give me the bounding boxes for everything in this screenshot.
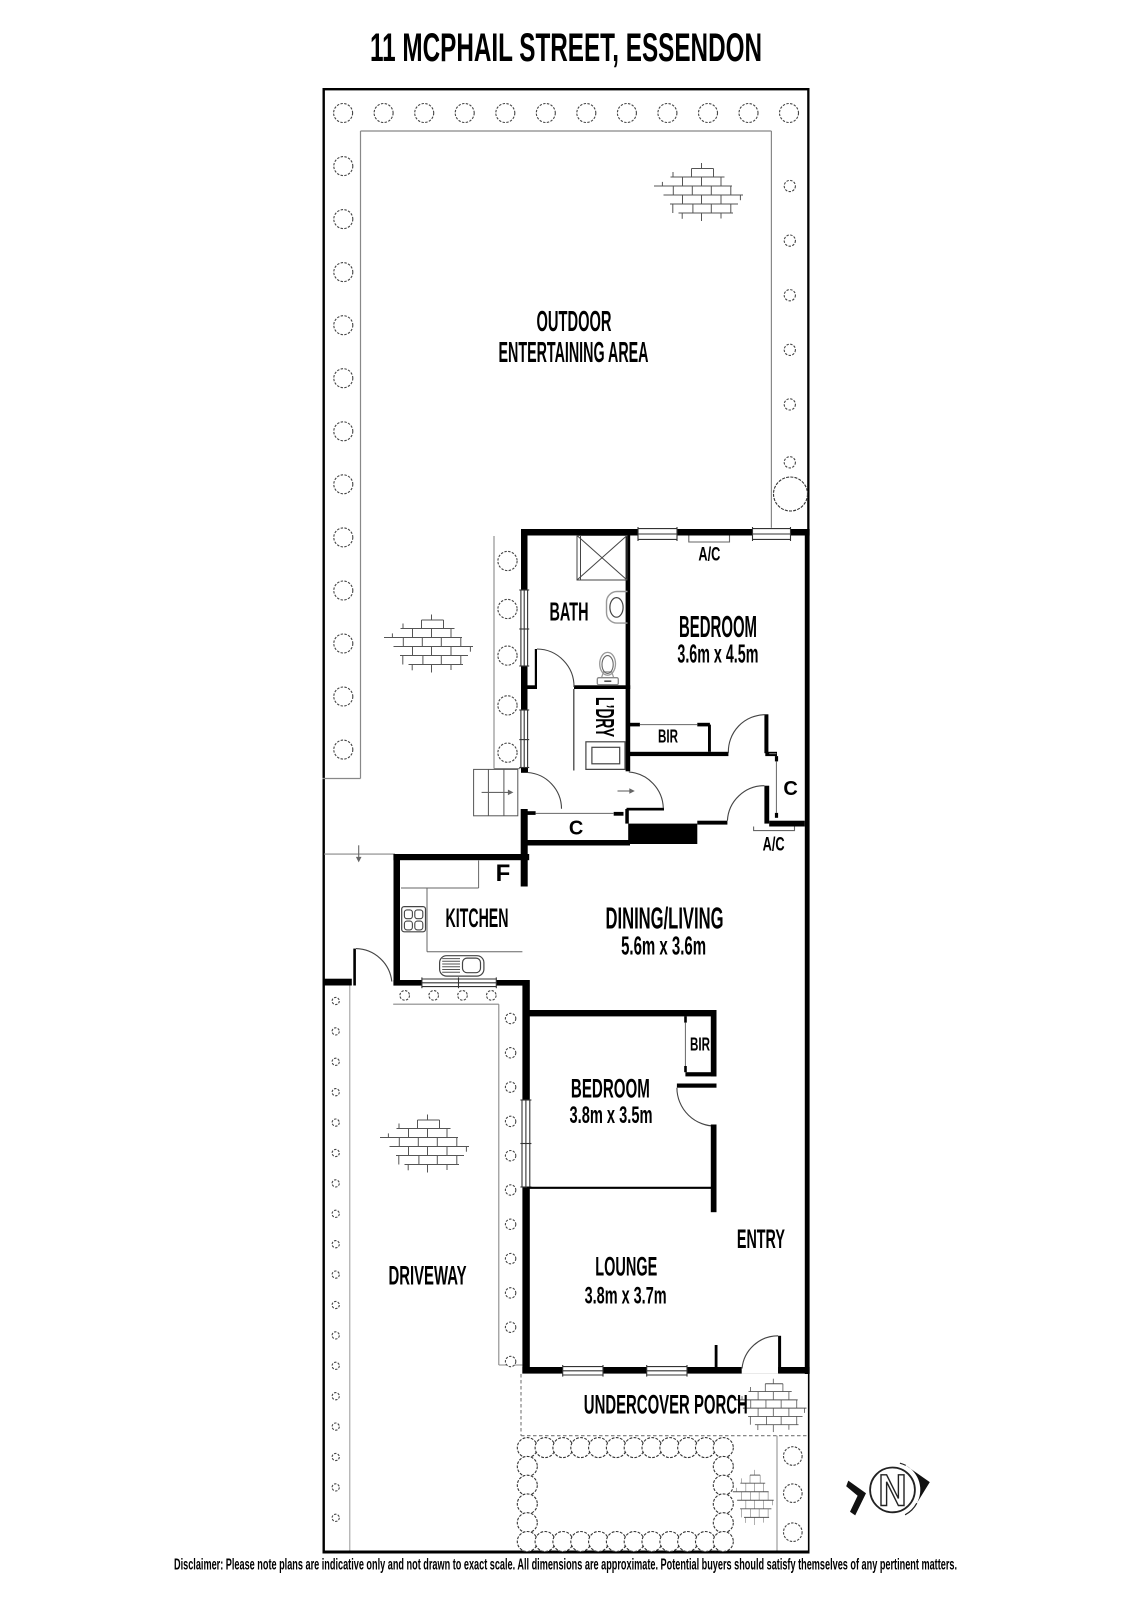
svg-text:BIR: BIR	[658, 727, 678, 747]
svg-text:ENTERTAINING AREA: ENTERTAINING AREA	[499, 337, 649, 369]
svg-text:ENTRY: ENTRY	[737, 1224, 785, 1254]
svg-text:F: F	[496, 860, 511, 887]
svg-text:UNDERCOVER PORCH: UNDERCOVER PORCH	[584, 1390, 748, 1420]
svg-text:A/C: A/C	[698, 545, 720, 566]
svg-text:BATH: BATH	[550, 597, 589, 627]
svg-text:Disclaimer: Please note plans: Disclaimer: Please note plans are indica…	[174, 1557, 957, 1574]
svg-text:BIR: BIR	[690, 1035, 710, 1055]
svg-text:3.6m x 4.5m: 3.6m x 4.5m	[677, 639, 758, 669]
svg-text:OUTDOOR: OUTDOOR	[537, 306, 612, 338]
svg-text:3.8m x 3.7m: 3.8m x 3.7m	[585, 1283, 667, 1310]
svg-text:A/C: A/C	[763, 835, 785, 856]
svg-text:C: C	[783, 778, 797, 800]
svg-text:5.6m x 3.6m: 5.6m x 3.6m	[621, 931, 706, 961]
svg-text:LOUNGE: LOUNGE	[595, 1252, 657, 1282]
svg-text:C: C	[569, 818, 583, 840]
svg-text:KITCHEN: KITCHEN	[446, 903, 509, 933]
svg-text:11 MCPHAIL STREET, ESSENDON: 11 MCPHAIL STREET, ESSENDON	[370, 26, 762, 70]
svg-text:L’DRY: L’DRY	[590, 697, 620, 737]
svg-text:3.8m x 3.5m: 3.8m x 3.5m	[570, 1102, 653, 1129]
svg-text:DRIVEWAY: DRIVEWAY	[389, 1261, 467, 1291]
svg-text:BEDROOM: BEDROOM	[571, 1074, 650, 1104]
